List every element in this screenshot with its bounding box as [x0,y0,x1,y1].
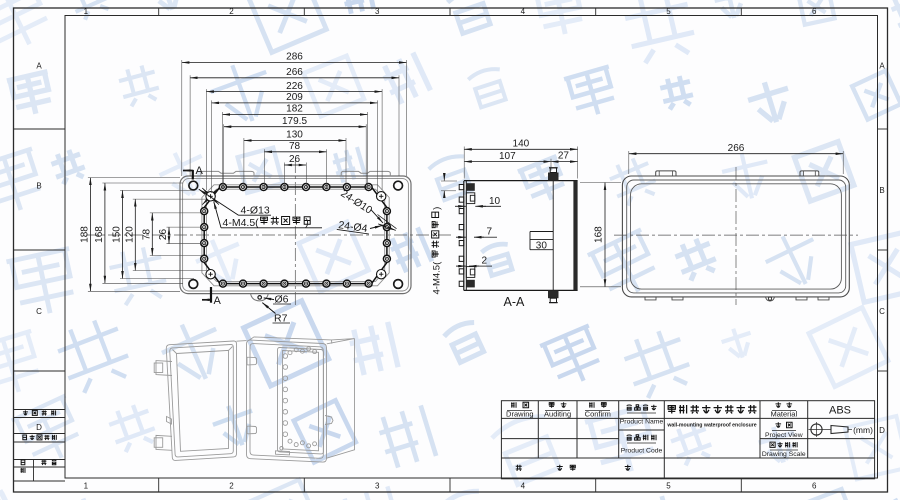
svg-text:C: C [36,307,42,316]
svg-text:A: A [36,62,42,71]
svg-text:A-A: A-A [504,295,526,309]
svg-text:27: 27 [558,151,570,162]
svg-text:1: 1 [84,482,89,491]
svg-text:24-Ø4: 24-Ø4 [338,219,369,235]
svg-text:4: 4 [521,7,526,16]
svg-text:2: 2 [229,482,234,491]
svg-text:2: 2 [229,7,234,16]
svg-text:140: 140 [513,139,530,150]
svg-text:107: 107 [499,151,516,162]
svg-text:B: B [36,182,41,191]
svg-text:30: 30 [536,240,548,251]
svg-text:A: A [879,62,885,71]
svg-text:168: 168 [94,226,105,243]
svg-text:26: 26 [289,154,301,165]
svg-text:4: 4 [521,482,526,491]
svg-text:Product Code: Product Code [621,448,663,455]
svg-text:A: A [196,165,204,177]
svg-text:182: 182 [286,104,303,115]
svg-text:D: D [879,426,885,435]
svg-text:): ) [432,207,443,210]
svg-text:78: 78 [142,229,153,241]
svg-text:5: 5 [666,7,671,16]
svg-text:6: 6 [812,482,817,491]
svg-text:78: 78 [289,141,301,152]
svg-text:D: D [36,423,42,432]
svg-text:209: 209 [286,92,303,103]
svg-text:7: 7 [487,227,493,238]
svg-text:26: 26 [158,229,169,241]
svg-text:150: 150 [112,226,123,243]
svg-text:Drawing Scale: Drawing Scale [762,451,806,458]
svg-text:266: 266 [728,143,745,154]
svg-text:1: 1 [84,7,89,16]
svg-text:wall-mounting waterproof enclo: wall-mounting waterproof enclosure [666,423,756,429]
svg-text:120: 120 [125,226,136,243]
svg-text:286: 286 [286,52,303,63]
svg-text:168: 168 [594,226,605,243]
svg-text:5: 5 [666,482,671,491]
svg-text:6: 6 [812,7,817,16]
svg-text:3: 3 [375,482,380,491]
svg-text:130: 130 [286,130,303,141]
svg-text:10: 10 [489,196,501,207]
svg-text:Product Name: Product Name [620,419,664,426]
svg-text:266: 266 [286,67,303,78]
svg-text:188: 188 [80,226,91,243]
svg-text:4-M4.5(: 4-M4.5( [432,261,443,295]
svg-text:A: A [214,295,222,307]
svg-text:): ) [305,217,309,229]
svg-text:226: 226 [286,81,303,92]
svg-text:2: 2 [482,256,488,267]
svg-text:24-Ø10: 24-Ø10 [338,187,374,216]
svg-text:B: B [879,186,884,195]
svg-text:179.5: 179.5 [282,116,307,127]
svg-text:4-M4.5(: 4-M4.5( [223,217,260,229]
svg-text:(mm): (mm) [853,425,873,435]
svg-text:C: C [879,307,885,316]
svg-text:ABS: ABS [829,405,851,417]
svg-text:4-Ø13: 4-Ø13 [241,205,270,217]
svg-text:Project View: Project View [765,432,803,439]
svg-text:3: 3 [375,7,380,16]
